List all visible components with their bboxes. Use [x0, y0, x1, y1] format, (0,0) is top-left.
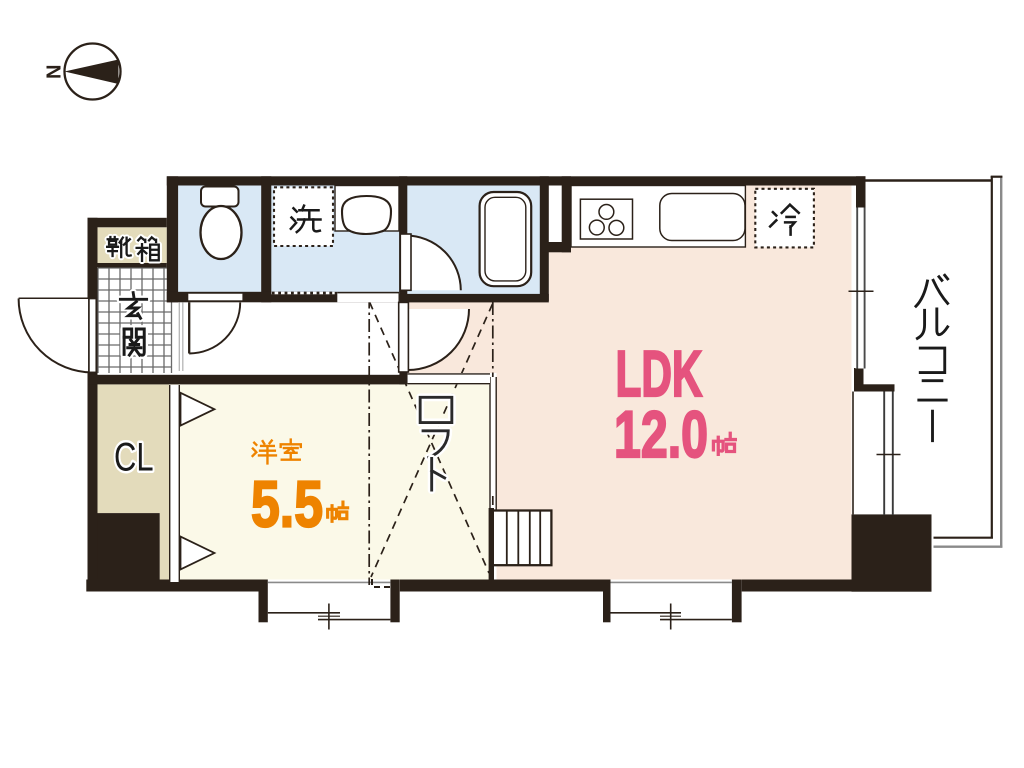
svg-text:5.5: 5.5 [251, 468, 323, 541]
svg-text:CL: CL [114, 436, 154, 480]
svg-text:N: N [44, 65, 66, 79]
svg-text:12.0: 12.0 [614, 397, 708, 471]
